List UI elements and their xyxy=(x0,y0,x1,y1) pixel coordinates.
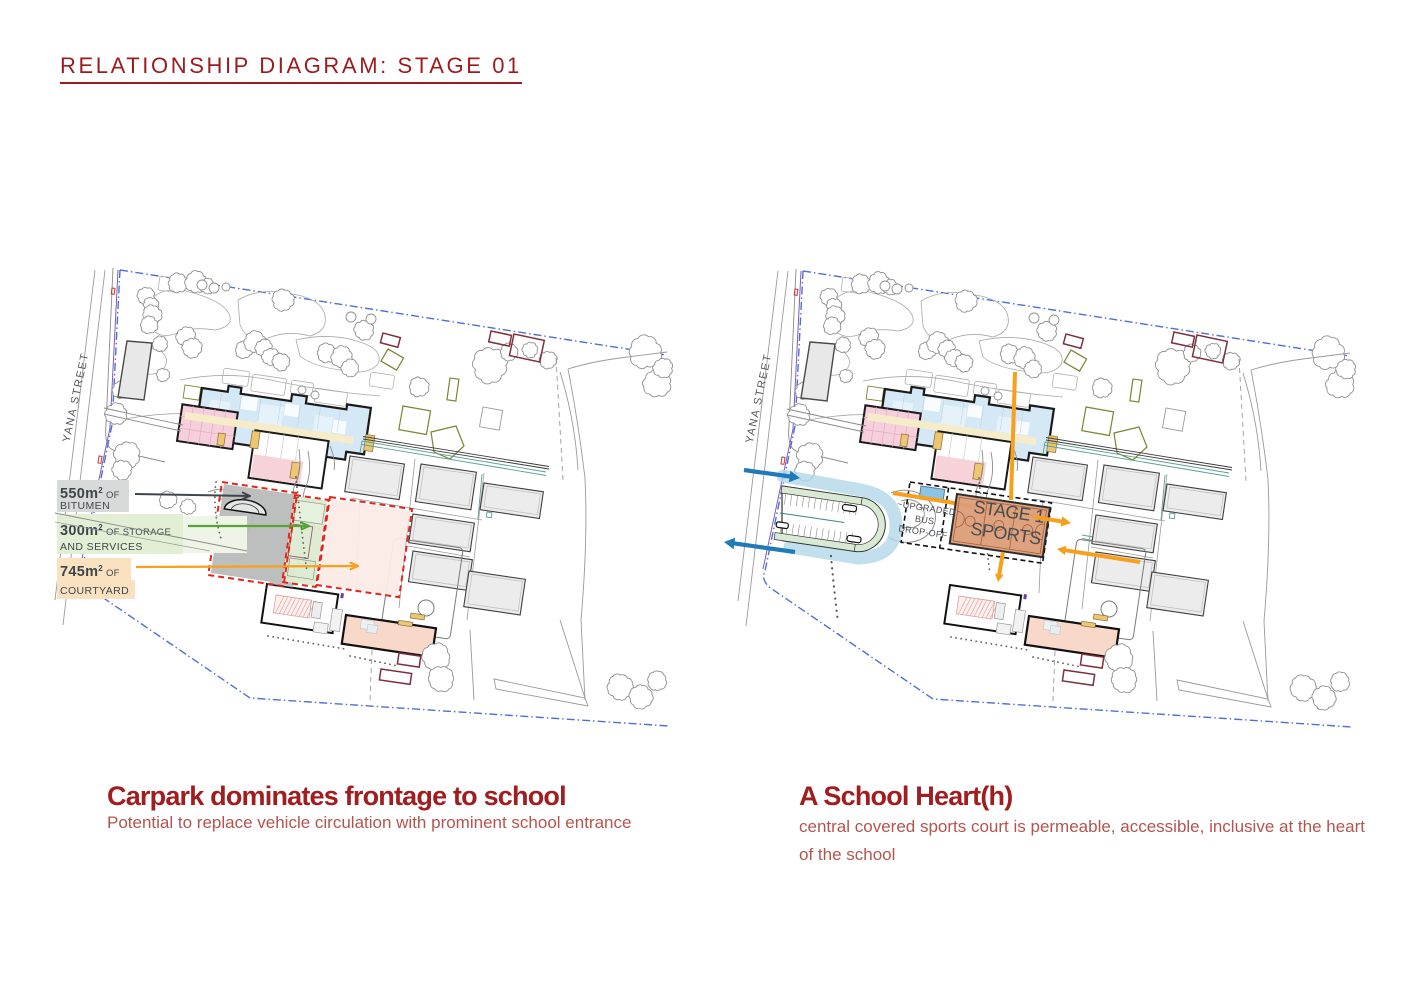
svg-text:BITUMEN: BITUMEN xyxy=(60,500,110,512)
svg-text:AND SERVICES: AND SERVICES xyxy=(60,541,143,553)
svg-text:BUS: BUS xyxy=(914,514,935,527)
svg-text:COURTYARD: COURTYARD xyxy=(60,585,129,597)
